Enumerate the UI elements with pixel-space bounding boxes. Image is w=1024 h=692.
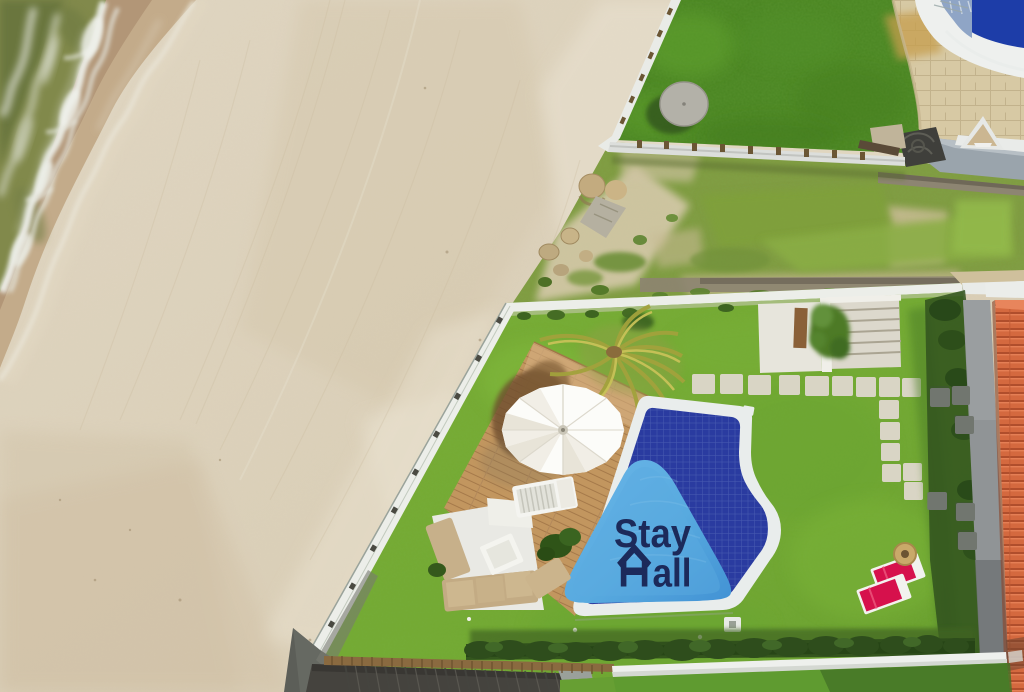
- svg-text:Stay: Stay: [614, 512, 692, 556]
- svg-text:all: all: [653, 552, 692, 596]
